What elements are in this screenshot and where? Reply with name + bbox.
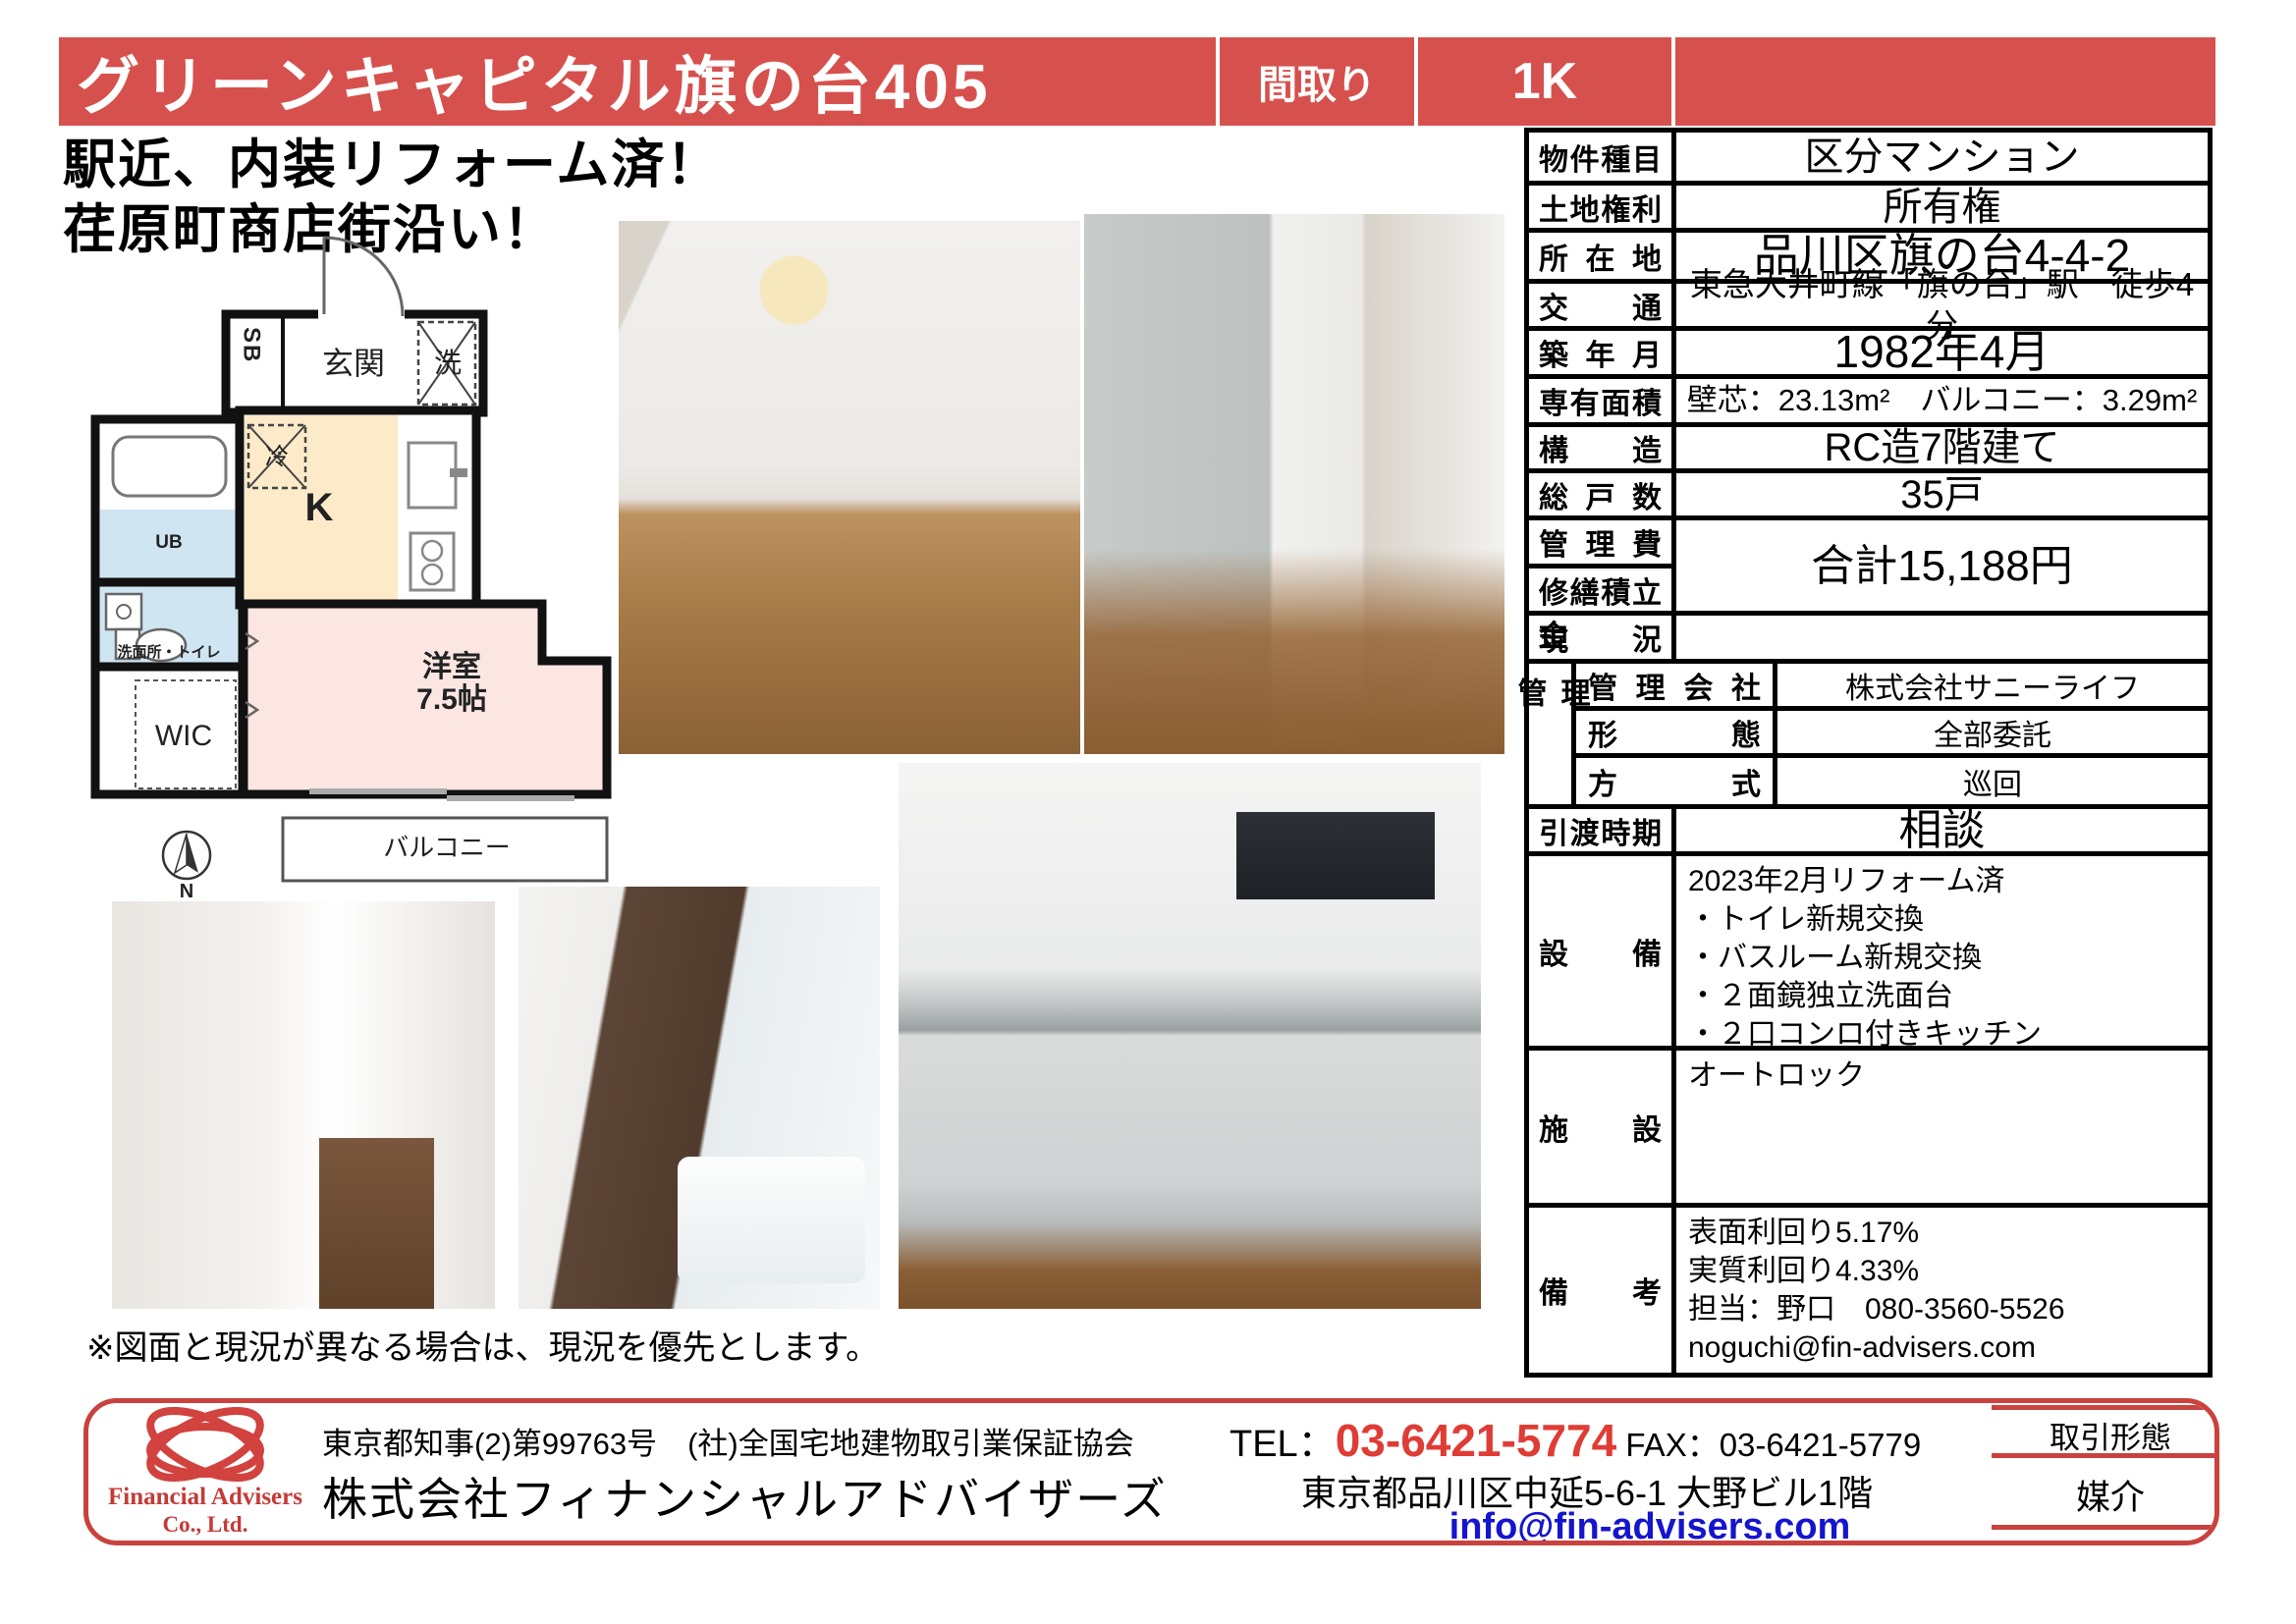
table-row: 設備 2023年2月リフォーム済 ・トイレ新規交換 ・バスルーム新規交換 ・２面… [1529, 856, 2208, 1051]
row-label: 専有面積 [1529, 379, 1676, 422]
table-row: 形態 全部委託 [1576, 711, 2208, 758]
row-label: 備考 [1529, 1208, 1676, 1373]
fees-label-column: 管理費 修繕積立金 [1529, 520, 1676, 611]
row-value: 所有権 [1676, 186, 2208, 228]
entrance-walls [226, 238, 483, 412]
layout-value: 1K [1418, 37, 1671, 126]
floorplan-label-ub: UB [137, 533, 200, 554]
table-row: 物件種目 区分マンション [1529, 133, 2208, 186]
madori-label: 間取り [1220, 37, 1414, 126]
row-value: 区分マンション [1676, 133, 2208, 181]
row-value: RC造7階建て [1676, 427, 2208, 468]
table-row: 施設 オートロック [1529, 1051, 2208, 1208]
floorplan-label-balcony: バルコニー [334, 834, 560, 862]
floorplan-label-main-room: 洋室 7.5帖 [383, 651, 520, 716]
row-value: 2023年2月リフォーム済 ・トイレ新規交換 ・バスルーム新規交換 ・２面鏡独立… [1676, 856, 2208, 1046]
floorplan-label-sb: SB [238, 327, 271, 363]
row-value: 株式会社サニーライフ [1777, 664, 2208, 706]
footer: Financial Advisers Co., Ltd. 東京都知事(2)第99… [83, 1398, 2219, 1545]
title-banner: グリーンキャピタル旗の台405 間取り 1K [59, 37, 2215, 126]
row-label: 設備 [1529, 856, 1676, 1046]
row-label: 管理会社 [1576, 664, 1777, 706]
table-row-fees: 管理費 修繕積立金 合計15,188円 [1529, 520, 2208, 616]
row-value: 壁芯：23.13m² バルコニー：3.29m² [1676, 379, 2208, 422]
kitchen-walls [240, 410, 476, 605]
table-row: 専有面積 壁芯：23.13m² バルコニー：3.29m² [1529, 379, 2208, 427]
company-logo-text: Financial Advisers Co., Ltd. [88, 1484, 322, 1538]
door-swing-arc [324, 238, 403, 316]
table-row: 総戸数 35戸 [1529, 473, 2208, 520]
license-number: 東京都知事(2)第99763号 (社)全国宅地建物取引業保証協会 [322, 1419, 1134, 1463]
row-value: 合計15,188円 [1676, 520, 2208, 611]
row-label: 施設 [1529, 1051, 1676, 1203]
spec-table: 物件種目 区分マンション 土地権利 所有権 所在地 品川区旗の台4-4-2 交通… [1524, 128, 2213, 1378]
row-value: 全部委託 [1777, 711, 2208, 753]
tel-label: TEL： [1230, 1424, 1336, 1465]
row-label: 築年月 [1529, 331, 1676, 374]
row-label: 管理費 [1529, 520, 1671, 568]
row-label: 総戸数 [1529, 473, 1676, 515]
table-row: 管理会社 株式会社サニーライフ [1576, 664, 2208, 711]
floorplan-label-fridge: 冷 [255, 445, 299, 470]
floorplan-label-genkan: 玄関 [295, 347, 412, 381]
management-side-label: 管理 [1529, 664, 1576, 804]
bathroom-walls [95, 419, 243, 584]
row-value: 35戸 [1676, 473, 2208, 515]
page-title: グリーンキャピタル旗の台405 [59, 37, 1216, 126]
fax-label: FAX： [1616, 1427, 1720, 1463]
disclaimer-note: ※図面と現況が異なる場合は、現況を優先とします。 [86, 1321, 879, 1369]
bathtub-shape [678, 1157, 865, 1283]
row-value: 東急大井町線「旗の台」駅 徒歩4分 [1676, 284, 2208, 326]
deal-box-divider [1992, 1405, 2214, 1410]
row-label: 物件種目 [1529, 133, 1676, 181]
floorplan-label-laundry: 洗 [422, 349, 473, 379]
range-hood-shape [1236, 812, 1435, 899]
property-flyer-page: グリーンキャピタル旗の台405 間取り 1K 駅近、内装リフォーム済！ 荏原町商… [0, 0, 2296, 1624]
row-value: 表面利回り5.17% 実質利回り4.33% 担当：野口 080-3560-552… [1676, 1208, 2208, 1373]
row-label: 構造 [1529, 427, 1676, 468]
company-logo-icon [112, 1407, 299, 1484]
row-value [1676, 616, 2208, 659]
table-row: 備考 表面利回り5.17% 実質利回り4.33% 担当：野口 080-3560-… [1529, 1208, 2208, 1373]
phone-line: TEL：03-6421-5774 FAX：03-6421-5779 [1230, 1413, 1921, 1467]
photo-kitchen-hallway [1084, 214, 1504, 754]
row-value: 相談 [1676, 809, 2208, 851]
row-label: 土地権利 [1529, 186, 1676, 228]
row-label: 形態 [1576, 711, 1777, 753]
floorplan-label-wic: WIC [130, 720, 238, 752]
table-row: 方式 巡回 [1576, 758, 2208, 804]
bathtub-icon [113, 437, 226, 496]
row-label: 交通 [1529, 284, 1676, 326]
row-label: 方式 [1576, 758, 1777, 804]
table-row: 築年月 1982年4月 [1529, 331, 2208, 379]
photo-living-room [619, 221, 1080, 754]
fax-number: 03-6421-5779 [1720, 1427, 1922, 1463]
table-row: 引渡時期 相談 [1529, 809, 2208, 856]
photo-bathroom [519, 887, 880, 1309]
photo-kitchen-closeup [899, 763, 1481, 1309]
vanity-cabinet-shape [319, 1138, 434, 1309]
deal-type-value: 媒介 [1998, 1470, 2219, 1520]
table-row: 現況 [1529, 616, 2208, 664]
floorplan-label-north: N [173, 881, 200, 902]
row-label: 現況 [1529, 616, 1676, 659]
floorplan-label-washroom: 洗面所・トイレ [100, 645, 238, 662]
photo-washroom [112, 901, 495, 1309]
deal-type-label: 取引形態 [1998, 1413, 2219, 1457]
floor-plan: SB 玄関 洗 冷 K UB 洗面所・トイレ WIC 洋室 7.5帖 バルコニー… [59, 191, 629, 913]
washbasin-icon [106, 594, 141, 629]
table-row: 構造 RC造7階建て [1529, 427, 2208, 473]
compass-icon [163, 832, 210, 879]
row-label: 引渡時期 [1529, 809, 1676, 851]
email-link[interactable]: info@fin-advisers.com [1419, 1506, 1881, 1545]
banner-empty-cell [1675, 37, 2215, 126]
row-value: 巡回 [1777, 758, 2208, 804]
table-row-management: 管理 管理会社 株式会社サニーライフ 形態 全部委託 方式 巡回 [1529, 664, 2208, 809]
stove-icon [410, 533, 454, 590]
management-subrows: 管理会社 株式会社サニーライフ 形態 全部委託 方式 巡回 [1576, 664, 2208, 804]
floorplan-label-kitchen: K [285, 486, 354, 529]
row-label: 所在地 [1529, 233, 1676, 279]
table-row: 土地権利 所有権 [1529, 186, 2208, 233]
tel-number: 03-6421-5774 [1336, 1415, 1616, 1466]
row-value: オートロック [1676, 1051, 2208, 1203]
company-name: 株式会社フィナンシャルアドバイザーズ [322, 1464, 1168, 1529]
deal-box-divider [1992, 1525, 2214, 1530]
row-value: 1982年4月 [1676, 331, 2208, 374]
